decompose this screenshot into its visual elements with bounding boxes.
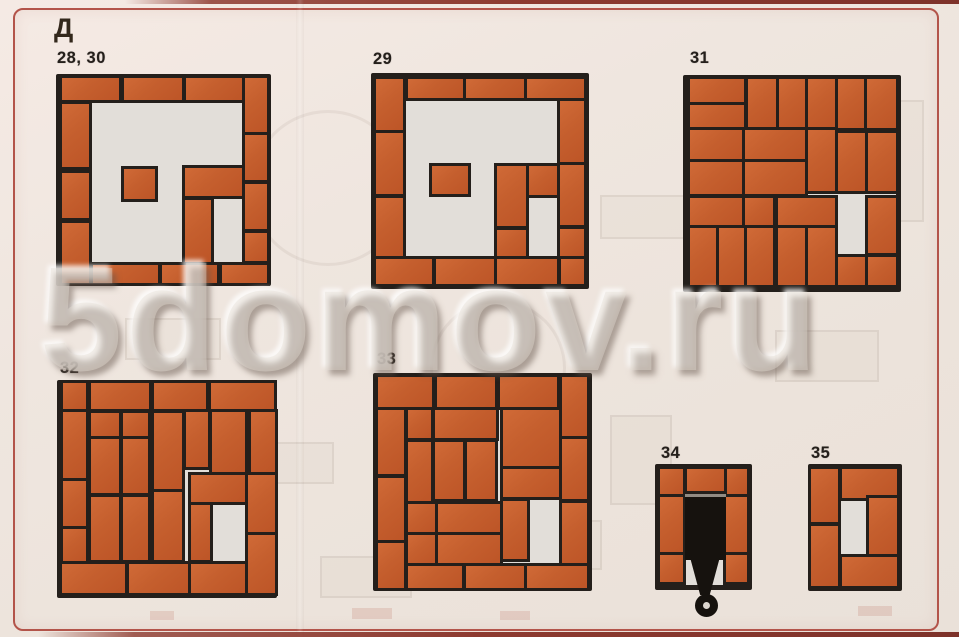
brick (185, 200, 211, 261)
brick (690, 228, 716, 286)
brick (438, 504, 499, 532)
brick (690, 79, 745, 103)
brick (842, 557, 897, 586)
figure-label-35: 35 (811, 444, 830, 463)
page-bottom-edge-strip (0, 632, 959, 637)
brick (811, 469, 838, 522)
brick (154, 492, 183, 560)
brick (63, 412, 86, 478)
brick (562, 439, 587, 499)
section-label: Д (54, 13, 74, 44)
brick (497, 166, 525, 226)
brick (245, 135, 267, 180)
brick (529, 166, 557, 195)
brick (808, 228, 834, 286)
brick (154, 383, 206, 409)
brick (778, 228, 805, 286)
brick (779, 79, 805, 128)
brick (437, 377, 495, 406)
brick (91, 497, 119, 560)
brick (690, 198, 745, 225)
brick (62, 173, 88, 219)
brick (660, 469, 683, 494)
brick (500, 377, 557, 406)
brick (562, 503, 587, 563)
brick (503, 501, 527, 560)
brick (376, 79, 403, 130)
brick (719, 228, 744, 286)
brick (503, 410, 558, 466)
brick (690, 130, 745, 158)
brick (868, 198, 895, 253)
brick (123, 439, 148, 494)
brick (63, 481, 86, 526)
brick (660, 497, 683, 552)
brick (378, 377, 432, 406)
brick (212, 412, 245, 472)
brick (745, 198, 773, 225)
brick (248, 475, 274, 532)
brick (376, 259, 432, 284)
brick (162, 265, 217, 283)
brick (811, 526, 838, 586)
brick (838, 133, 865, 192)
brick (186, 78, 242, 100)
brick (191, 505, 210, 560)
brick (660, 555, 683, 582)
brick (726, 497, 747, 552)
brick (466, 79, 524, 97)
brick (191, 564, 245, 592)
brick (211, 383, 274, 409)
brick (191, 475, 245, 502)
brick (186, 412, 208, 468)
figure-label-31: 31 (690, 49, 709, 68)
brickwork-course-32 (57, 380, 277, 598)
brick (378, 410, 404, 474)
brick (185, 168, 242, 196)
brick (527, 566, 587, 588)
brick (91, 439, 119, 494)
brick (690, 162, 745, 195)
brick (91, 383, 149, 409)
brick (124, 78, 182, 100)
brick (63, 383, 86, 409)
brick (123, 413, 148, 436)
scanned-page: { "page": { "section_label": "Д", "water… (0, 0, 959, 637)
brick (726, 555, 747, 582)
brick (123, 497, 148, 560)
figure-label-28-30: 28, 30 (57, 49, 106, 68)
brickwork-course-34 (655, 464, 752, 590)
brick (62, 564, 125, 592)
brickwork-course-33 (373, 373, 592, 591)
brick (868, 133, 895, 192)
page-top-edge-strip (0, 0, 959, 4)
brick (245, 78, 267, 132)
brick (376, 198, 403, 255)
brick (503, 469, 558, 497)
page-crease (296, 0, 304, 637)
brick (62, 104, 88, 168)
brick (245, 184, 267, 229)
brick (248, 535, 274, 593)
brick (467, 442, 495, 500)
brick (778, 198, 835, 225)
brick (690, 105, 745, 128)
brickwork-course-31 (683, 75, 901, 292)
brick (408, 566, 463, 588)
brick (527, 79, 583, 97)
brick (869, 498, 897, 555)
brick (838, 257, 865, 285)
brick (91, 413, 119, 436)
brick (466, 566, 524, 588)
figure-label-29: 29 (373, 50, 392, 69)
brick (560, 229, 584, 256)
brick (867, 79, 895, 128)
brick (62, 223, 88, 282)
brick (408, 535, 435, 562)
brick (838, 79, 864, 128)
brick (154, 413, 183, 489)
brick (408, 410, 432, 438)
brick (378, 478, 404, 540)
brick (687, 469, 724, 491)
brick (438, 535, 499, 562)
brick (63, 529, 86, 561)
damper-plate (685, 494, 727, 561)
brick (808, 130, 834, 191)
brick (129, 564, 188, 592)
figure-label-32: 32 (60, 359, 79, 378)
brick (378, 543, 404, 588)
damper-ring-icon (695, 594, 718, 617)
brick (222, 265, 267, 283)
brickwork-course-28-30 (56, 74, 271, 286)
brick (747, 228, 773, 286)
brick (808, 79, 834, 128)
brick (432, 166, 468, 194)
brickwork-course-29 (371, 73, 589, 289)
figure-label-34: 34 (661, 444, 680, 463)
brick (726, 469, 747, 494)
brick (245, 233, 267, 261)
brick (497, 259, 557, 284)
brick (408, 442, 432, 501)
brick (560, 101, 584, 161)
brick (436, 259, 494, 284)
brick (124, 169, 155, 199)
brick (408, 79, 463, 97)
brickwork-course-35 (808, 464, 902, 591)
brick (62, 78, 119, 100)
brick (868, 257, 895, 285)
brick (842, 469, 897, 498)
brick (408, 504, 435, 532)
brick (497, 230, 525, 256)
brick (745, 162, 805, 195)
brick (561, 259, 585, 284)
brick (435, 410, 496, 438)
brick (745, 130, 805, 158)
brick (251, 412, 275, 472)
brick (435, 442, 463, 500)
brick (748, 79, 775, 128)
brick (562, 377, 587, 436)
figure-label-33: 33 (377, 350, 396, 369)
brick (376, 133, 403, 193)
brick (560, 165, 584, 225)
brick (93, 265, 159, 283)
